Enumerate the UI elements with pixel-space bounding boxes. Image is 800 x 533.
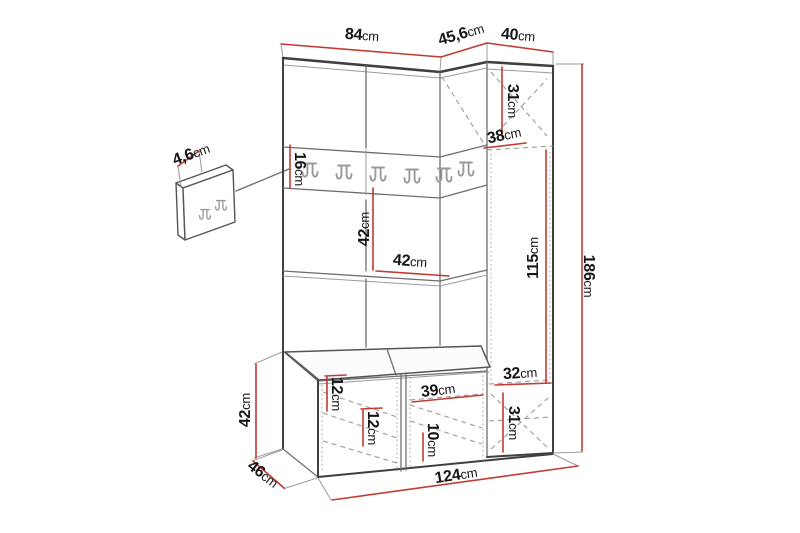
dim-mid-section-width: 42cm	[392, 251, 427, 270]
dim-bench-opening-height: 10cm	[425, 423, 442, 457]
dim-total-height: 186cm	[581, 255, 598, 298]
dim-door-height: 115cm	[525, 237, 542, 279]
dim-bench-shelf-a: 12cm	[329, 377, 346, 411]
furniture-dimension-diagram: 84cm 45,6cm 40cm 4,6cm 16cm 31cm 38cm 42…	[0, 0, 800, 533]
dim-cabinet-lower-height: 31cm	[506, 406, 523, 440]
dim-cabinet-upper-height: 31cm	[505, 84, 522, 118]
dim-bench-height: 42cm	[237, 393, 254, 427]
dim-cabinet-top-width: 40cm	[500, 25, 535, 45]
dim-main-top-width: 84cm	[344, 25, 379, 44]
dim-bench-shelf-b: 12cm	[365, 411, 382, 445]
dim-mid-section-height: 42cm	[356, 212, 373, 246]
dim-rail-height: 16cm	[292, 152, 309, 186]
